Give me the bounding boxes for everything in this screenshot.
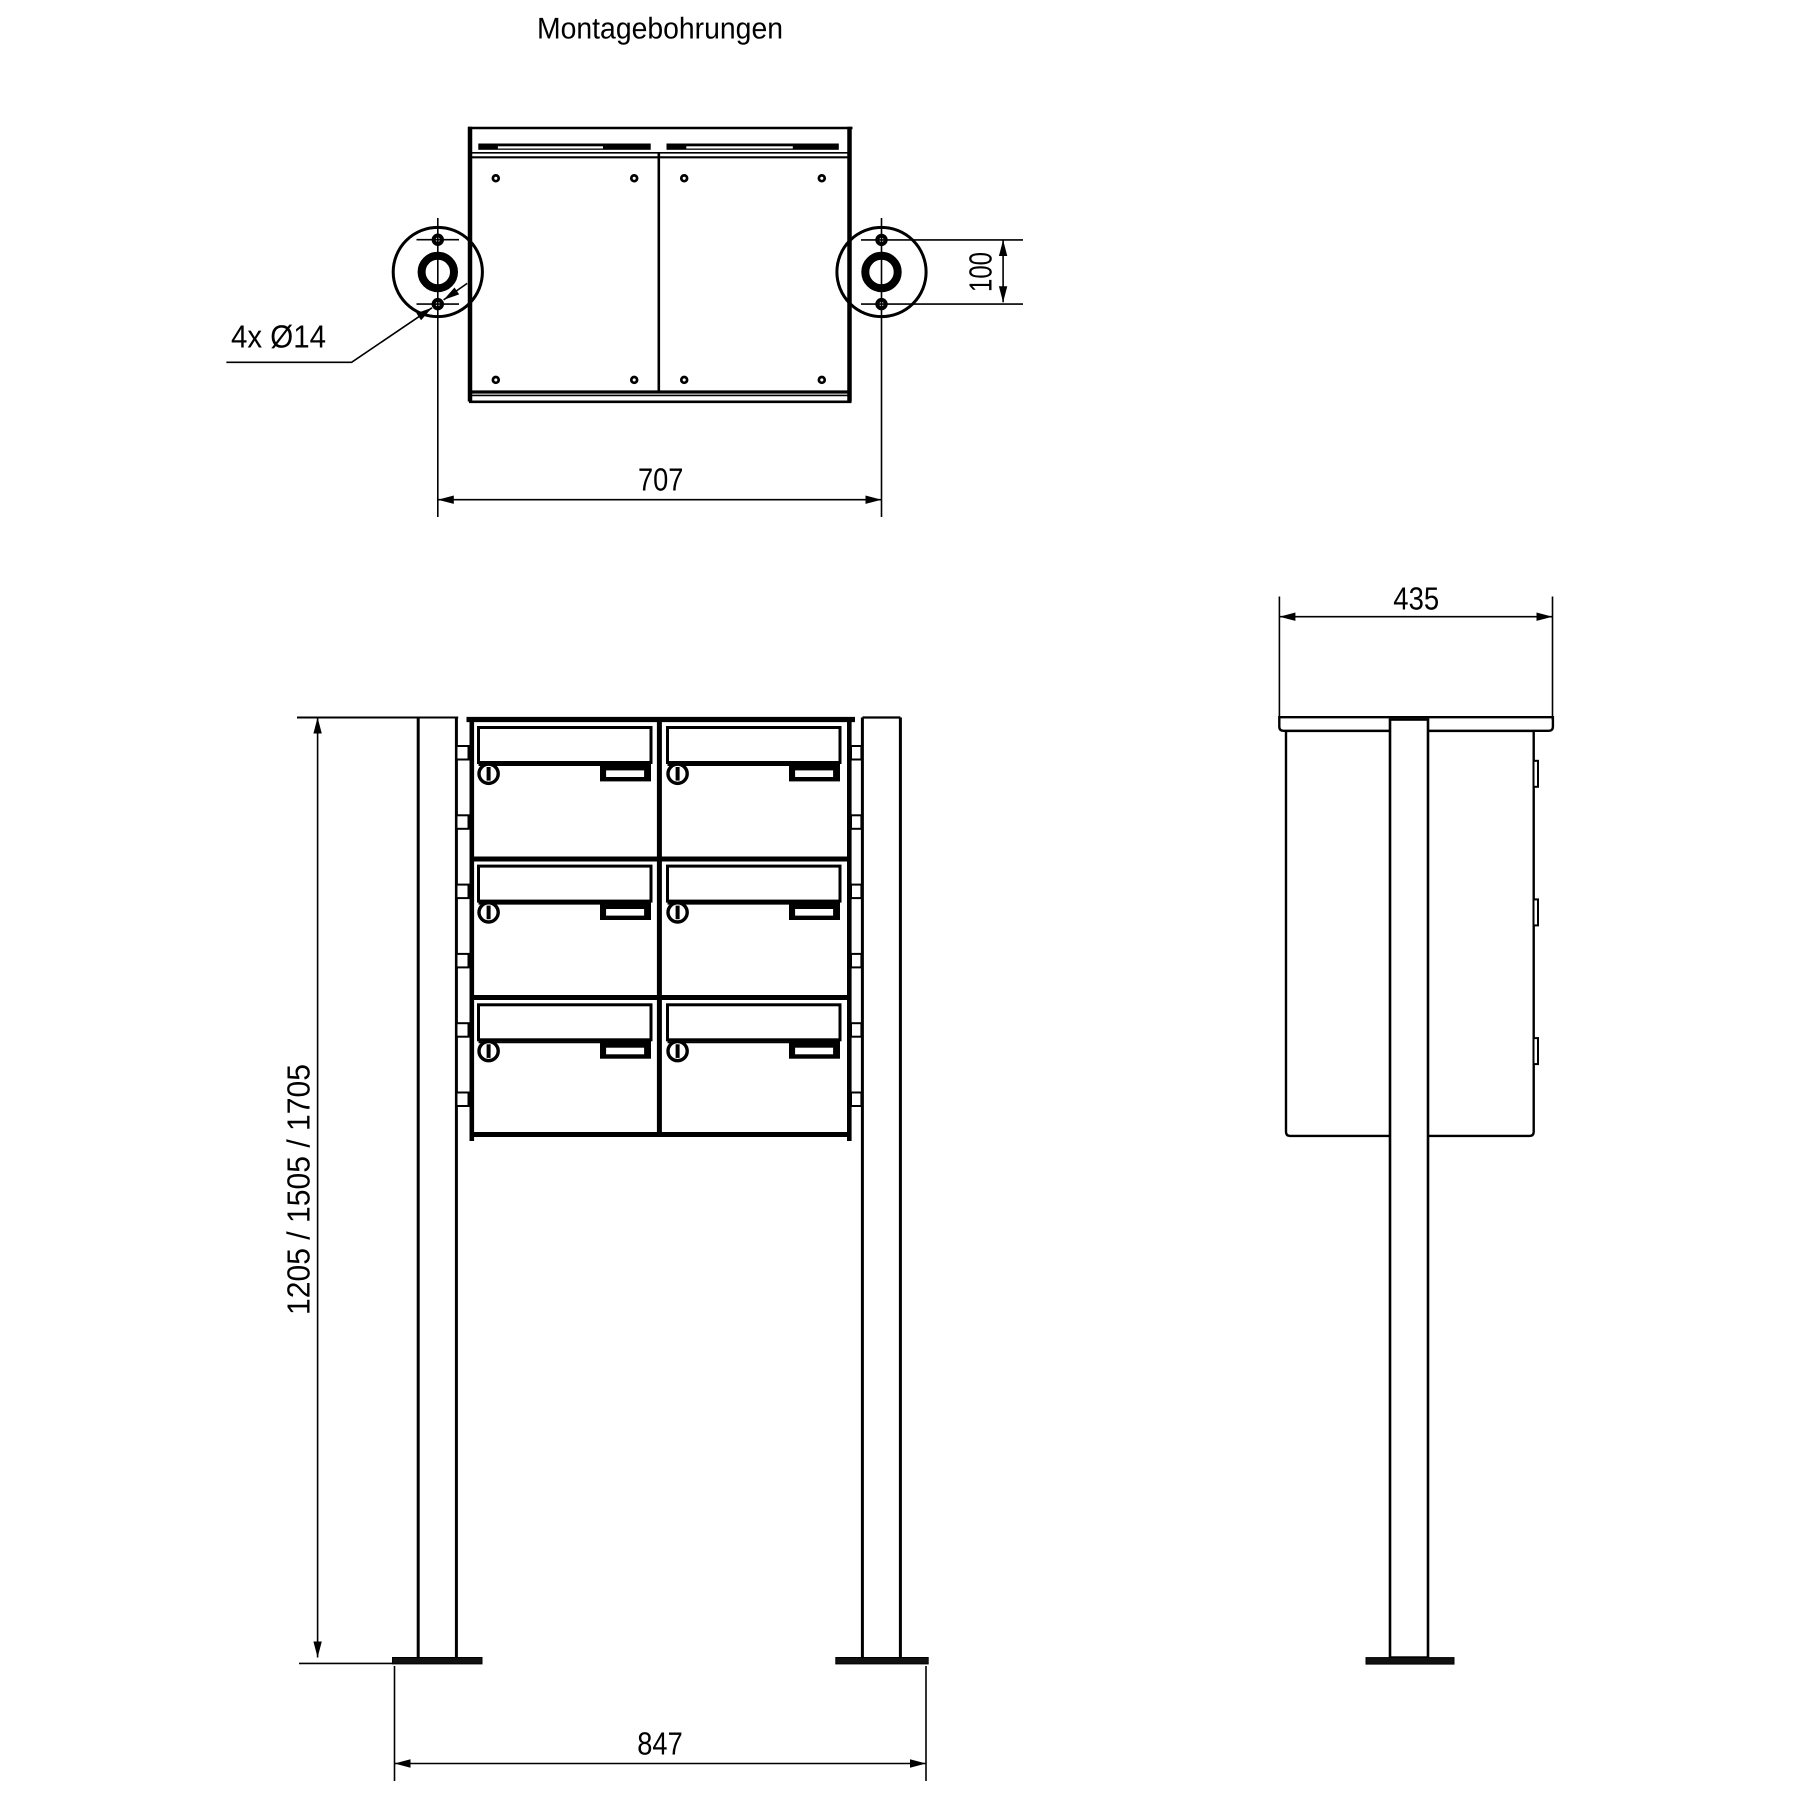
svg-text:707: 707 xyxy=(638,462,683,498)
svg-text:4x Ø14: 4x Ø14 xyxy=(231,318,326,354)
svg-text:1205 / 1505 / 1705: 1205 / 1505 / 1705 xyxy=(281,1064,317,1315)
svg-text:100: 100 xyxy=(963,252,999,292)
svg-text:435: 435 xyxy=(1393,581,1439,617)
svg-text:847: 847 xyxy=(637,1726,682,1762)
svg-text:Montagebohrungen: Montagebohrungen xyxy=(537,13,783,46)
